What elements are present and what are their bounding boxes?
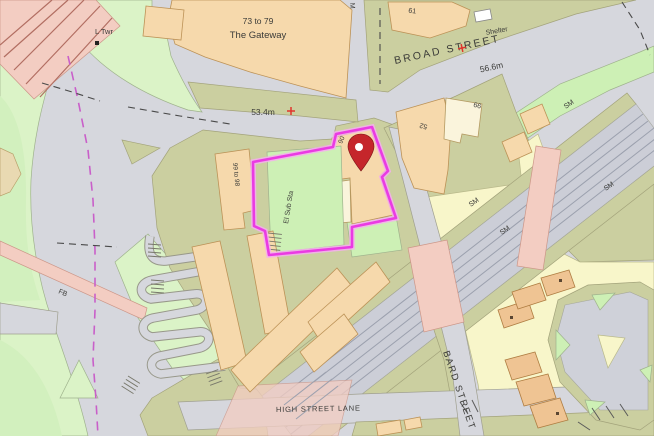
- label-spot-height-53: 53.4m: [251, 107, 275, 117]
- label-building-61: 61: [408, 8, 417, 16]
- map-viewport[interactable]: 73 to 79 The Gateway L Twr 53.4m BROAD S…: [0, 0, 654, 436]
- el-sub-sta-yard: [267, 146, 344, 253]
- building-gateway-annex: [143, 6, 184, 40]
- label-l-twr: L Twr: [95, 27, 113, 36]
- l-twr-marker: [95, 41, 99, 45]
- map-canvas[interactable]: 73 to 79 The Gateway L Twr 53.4m BROAD S…: [0, 0, 654, 436]
- label-gateway-range: 73 to 79: [243, 16, 274, 26]
- label-high-street-lane: HIGH STREET LANE: [276, 404, 361, 414]
- label-top-fragment: M: [348, 3, 355, 9]
- label-gateway-name: The Gateway: [230, 30, 287, 41]
